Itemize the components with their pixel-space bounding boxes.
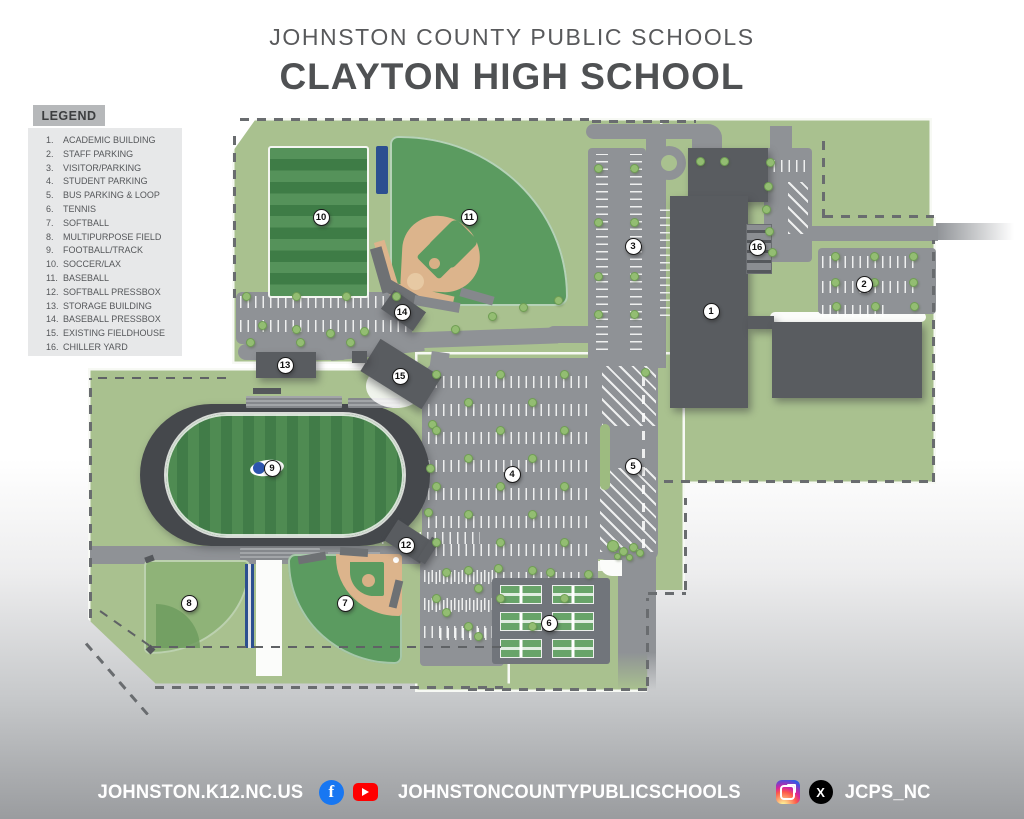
legend-item-number: 3. bbox=[46, 162, 63, 176]
legend-item: 6.TENNIS bbox=[46, 203, 182, 217]
parking-stripes bbox=[428, 516, 588, 528]
tree-icon bbox=[909, 252, 918, 261]
storage-loading-bar bbox=[253, 388, 281, 394]
legend-item: 13.STORAGE BUILDING bbox=[46, 300, 182, 314]
tree-icon bbox=[909, 278, 918, 287]
tree-icon bbox=[451, 325, 460, 334]
x-icon[interactable]: X bbox=[809, 780, 833, 804]
shed-building bbox=[352, 351, 367, 363]
stadium-bleachers bbox=[246, 396, 342, 408]
instagram-icon[interactable] bbox=[776, 780, 800, 804]
tree-icon bbox=[630, 164, 639, 173]
dropoff-island bbox=[661, 155, 677, 171]
boundary-dash bbox=[664, 480, 932, 483]
tree-icon bbox=[831, 278, 840, 287]
legend-item: 11.BASEBALL bbox=[46, 272, 182, 286]
legend-item-number: 11. bbox=[46, 272, 63, 286]
tree-icon bbox=[554, 296, 563, 305]
legend-item-label: VISITOR/PARKING bbox=[63, 163, 141, 173]
legend-item-label: SOFTBALL bbox=[63, 218, 109, 228]
map-marker-academic-building: 1 bbox=[703, 303, 720, 320]
baseball-home-circle bbox=[407, 273, 424, 290]
youtube-icon[interactable] bbox=[353, 783, 378, 801]
legend-item-number: 9. bbox=[46, 244, 63, 258]
tree-icon bbox=[519, 303, 528, 312]
legend-item-number: 1. bbox=[46, 134, 63, 148]
tree-icon bbox=[560, 594, 569, 603]
tree-icon bbox=[626, 554, 633, 561]
legend-panel: 1.ACADEMIC BUILDING2.STAFF PARKING3.VISI… bbox=[28, 128, 182, 356]
tree-icon bbox=[296, 338, 305, 347]
legend-item-number: 10. bbox=[46, 258, 63, 272]
tree-icon bbox=[528, 454, 537, 463]
tree-icon bbox=[464, 566, 473, 575]
tennis-court bbox=[500, 639, 542, 658]
tree-icon bbox=[560, 426, 569, 435]
legend-item: 15.EXISTING FIELDHOUSE bbox=[46, 327, 182, 341]
tree-icon bbox=[614, 553, 621, 560]
legend-item-number: 16. bbox=[46, 341, 63, 355]
legend-item: 2.STAFF PARKING bbox=[46, 148, 182, 162]
map-marker-tennis: 6 bbox=[541, 615, 558, 632]
tree-icon bbox=[442, 568, 451, 577]
fields-bleacher-navy bbox=[245, 564, 254, 648]
tree-icon bbox=[488, 312, 497, 321]
map-marker-baseball: 11 bbox=[461, 209, 478, 226]
boundary-dash bbox=[155, 686, 503, 689]
legend-item-label: ACADEMIC BUILDING bbox=[63, 135, 156, 145]
map-marker-softball: 7 bbox=[337, 595, 354, 612]
legend-item: 4.STUDENT PARKING bbox=[46, 175, 182, 189]
tree-icon bbox=[464, 454, 473, 463]
tree-icon bbox=[442, 608, 451, 617]
tree-icon bbox=[560, 482, 569, 491]
tree-icon bbox=[528, 510, 537, 519]
tree-icon bbox=[496, 538, 505, 547]
map-marker-student-parking: 4 bbox=[504, 466, 521, 483]
legend-item-number: 5. bbox=[46, 189, 63, 203]
map-marker-visitor-parking: 3 bbox=[625, 238, 642, 255]
legend-item-label: FOOTBALL/TRACK bbox=[63, 245, 143, 255]
tree-icon bbox=[594, 310, 603, 319]
tree-icon bbox=[432, 482, 441, 491]
tree-icon bbox=[560, 370, 569, 379]
tree-icon bbox=[832, 302, 841, 311]
walk-fields-gap bbox=[256, 556, 282, 676]
legend-item-label: MULTIPURPOSE FIELD bbox=[63, 232, 161, 242]
boundary-dash bbox=[824, 215, 934, 218]
tree-icon bbox=[630, 218, 639, 227]
legend-item-number: 13. bbox=[46, 300, 63, 314]
tree-icon bbox=[594, 164, 603, 173]
x-handle-link[interactable]: JCPS_NC bbox=[844, 781, 930, 804]
soccer-bleacher bbox=[376, 146, 388, 194]
legend-item-number: 15. bbox=[46, 327, 63, 341]
tree-icon bbox=[496, 482, 505, 491]
tree-icon bbox=[636, 549, 644, 557]
legend-item-number: 8. bbox=[46, 231, 63, 245]
tree-icon bbox=[432, 370, 441, 379]
map-marker-storage-building: 13 bbox=[277, 357, 294, 374]
tree-icon bbox=[292, 292, 301, 301]
academic-building-east-wing bbox=[772, 322, 922, 398]
tree-icon bbox=[594, 218, 603, 227]
legend-item-label: CHILLER YARD bbox=[63, 342, 128, 352]
boundary-dash bbox=[646, 598, 649, 686]
tree-icon bbox=[910, 302, 919, 311]
tree-icon bbox=[258, 321, 267, 330]
tree-icon bbox=[424, 508, 433, 517]
legend-item: 10.SOCCER/LAX bbox=[46, 258, 182, 272]
tree-icon bbox=[584, 570, 593, 579]
legend-item: 7.SOFTBALL bbox=[46, 217, 182, 231]
legend-item-number: 14. bbox=[46, 313, 63, 327]
boundary-dash bbox=[822, 140, 825, 218]
map-marker-softball-pressbox: 12 bbox=[398, 537, 415, 554]
legend-item-number: 4. bbox=[46, 175, 63, 189]
baseball-pitcher-mound bbox=[429, 258, 440, 269]
softball-home-plate bbox=[393, 557, 399, 563]
tree-icon bbox=[766, 158, 775, 167]
map-marker-baseball-pressbox: 14 bbox=[394, 304, 411, 321]
tree-icon bbox=[246, 338, 255, 347]
tree-icon bbox=[474, 632, 483, 641]
legend-item-label: BASEBALL PRESSBOX bbox=[63, 314, 161, 324]
tree-icon bbox=[242, 292, 251, 301]
legend-item: 1.ACADEMIC BUILDING bbox=[46, 134, 182, 148]
tree-icon bbox=[496, 370, 505, 379]
district-title: JOHNSTON COUNTY PUBLIC SCHOOLS bbox=[0, 24, 1024, 51]
legend-item-number: 7. bbox=[46, 217, 63, 231]
legend-item: 16.CHILLER YARD bbox=[46, 341, 182, 355]
website-link[interactable]: JOHNSTON.K12.NC.US bbox=[98, 781, 304, 804]
tree-icon bbox=[546, 568, 555, 577]
legend-item: 5.BUS PARKING & LOOP bbox=[46, 189, 182, 203]
tree-icon bbox=[720, 157, 729, 166]
tree-icon bbox=[496, 594, 505, 603]
tree-icon bbox=[432, 426, 441, 435]
tree-icon bbox=[871, 302, 880, 311]
tree-icon bbox=[346, 338, 355, 347]
legend-item: 9.FOOTBALL/TRACK bbox=[46, 244, 182, 258]
legend-item: 3.VISITOR/PARKING bbox=[46, 162, 182, 176]
legend-item: 14.BASEBALL PRESSBOX bbox=[46, 313, 182, 327]
boundary-dash bbox=[932, 240, 935, 482]
boundary-dash bbox=[233, 128, 236, 298]
play-icon bbox=[362, 788, 369, 796]
legend-item-number: 6. bbox=[46, 203, 63, 217]
legend-item-number: 2. bbox=[46, 148, 63, 162]
boundary-dash bbox=[684, 498, 687, 590]
map-marker-staff-parking: 2 bbox=[856, 276, 873, 293]
boundary-dash bbox=[152, 646, 502, 648]
facebook-icon[interactable]: f bbox=[319, 780, 344, 805]
tree-icon bbox=[630, 272, 639, 281]
legend-item-label: STAFF PARKING bbox=[63, 149, 133, 159]
tree-icon bbox=[831, 252, 840, 261]
map-marker-chiller-yard: 16 bbox=[749, 239, 766, 256]
road-exit-east bbox=[936, 223, 1014, 240]
tree-icon bbox=[464, 510, 473, 519]
tree-icon bbox=[464, 398, 473, 407]
bus-loop-median bbox=[600, 424, 610, 490]
bus-lane-line bbox=[642, 372, 645, 548]
legend-item-number: 12. bbox=[46, 286, 63, 300]
tennis-court bbox=[500, 585, 542, 604]
tree-icon bbox=[360, 327, 369, 336]
tree-icon bbox=[560, 538, 569, 547]
legend-item: 12.SOFTBALL PRESSBOX bbox=[46, 286, 182, 300]
legend-item-label: STORAGE BUILDING bbox=[63, 301, 152, 311]
tree-icon bbox=[342, 292, 351, 301]
tennis-court bbox=[552, 612, 594, 631]
map-marker-multipurpose-field: 8 bbox=[181, 595, 198, 612]
tree-icon bbox=[528, 622, 537, 631]
tree-icon bbox=[607, 540, 619, 552]
boundary-dash bbox=[592, 120, 696, 123]
map-marker-football-track: 9 bbox=[264, 460, 281, 477]
tree-icon bbox=[764, 182, 773, 191]
tree-icon bbox=[528, 566, 537, 575]
boundary-dash bbox=[98, 377, 230, 379]
tree-icon bbox=[765, 227, 774, 236]
tree-icon bbox=[528, 398, 537, 407]
tree-icon bbox=[292, 325, 301, 334]
tree-icon bbox=[464, 622, 473, 631]
tree-icon bbox=[474, 584, 483, 593]
parking-stripes bbox=[428, 404, 588, 416]
tree-icon bbox=[426, 464, 435, 473]
boundary-dash bbox=[648, 592, 686, 595]
legend-item-label: STUDENT PARKING bbox=[63, 176, 148, 186]
road-entry-drive bbox=[618, 556, 656, 690]
tree-icon bbox=[870, 252, 879, 261]
academic-building-main bbox=[670, 196, 748, 408]
social-handle-link[interactable]: JOHNSTONCOUNTYPUBLICSCHOOLS bbox=[398, 781, 741, 804]
hatched-no-parking-zone bbox=[788, 182, 808, 234]
football-field bbox=[166, 414, 404, 536]
map-marker-bus-parking-loop: 5 bbox=[625, 458, 642, 475]
legend-item-label: SOCCER/LAX bbox=[63, 259, 121, 269]
tree-icon bbox=[432, 594, 441, 603]
legend-item-label: SOFTBALL PRESSBOX bbox=[63, 287, 161, 297]
campus-map-page: JOHNSTON COUNTY PUBLIC SCHOOLS CLAYTON H… bbox=[0, 0, 1024, 819]
tree-icon bbox=[768, 248, 777, 257]
tree-icon bbox=[496, 426, 505, 435]
tree-icon bbox=[494, 564, 503, 573]
boundary-dash bbox=[89, 378, 92, 618]
softball-pitcher-circle bbox=[362, 574, 375, 587]
map-marker-existing-fieldhouse: 15 bbox=[392, 368, 409, 385]
page-title: CLAYTON HIGH SCHOOL bbox=[0, 56, 1024, 98]
tree-icon bbox=[392, 292, 401, 301]
legend-item: 8.MULTIPURPOSE FIELD bbox=[46, 231, 182, 245]
tree-icon bbox=[326, 329, 335, 338]
academic-building-connector bbox=[748, 316, 774, 329]
map-marker-soccer-lax: 10 bbox=[313, 209, 330, 226]
parking-stripes bbox=[596, 154, 608, 350]
legend-item-label: EXISTING FIELDHOUSE bbox=[63, 328, 165, 338]
tree-icon bbox=[696, 157, 705, 166]
tree-icon bbox=[630, 310, 639, 319]
tennis-court bbox=[552, 585, 594, 604]
tree-icon bbox=[641, 368, 650, 377]
tree-icon bbox=[762, 205, 771, 214]
boundary-dash bbox=[240, 118, 590, 121]
tree-icon bbox=[432, 538, 441, 547]
legend-item-label: BASEBALL bbox=[63, 273, 109, 283]
tree-icon bbox=[594, 272, 603, 281]
legend-item-label: BUS PARKING & LOOP bbox=[63, 190, 160, 200]
footer-bar: JOHNSTON.K12.NC.US f JOHNSTONCOUNTYPUBLI… bbox=[0, 770, 1024, 814]
tennis-court bbox=[552, 639, 594, 658]
legend-title: LEGEND bbox=[33, 105, 105, 126]
camera-icon bbox=[780, 785, 795, 800]
legend-item-label: TENNIS bbox=[63, 204, 96, 214]
